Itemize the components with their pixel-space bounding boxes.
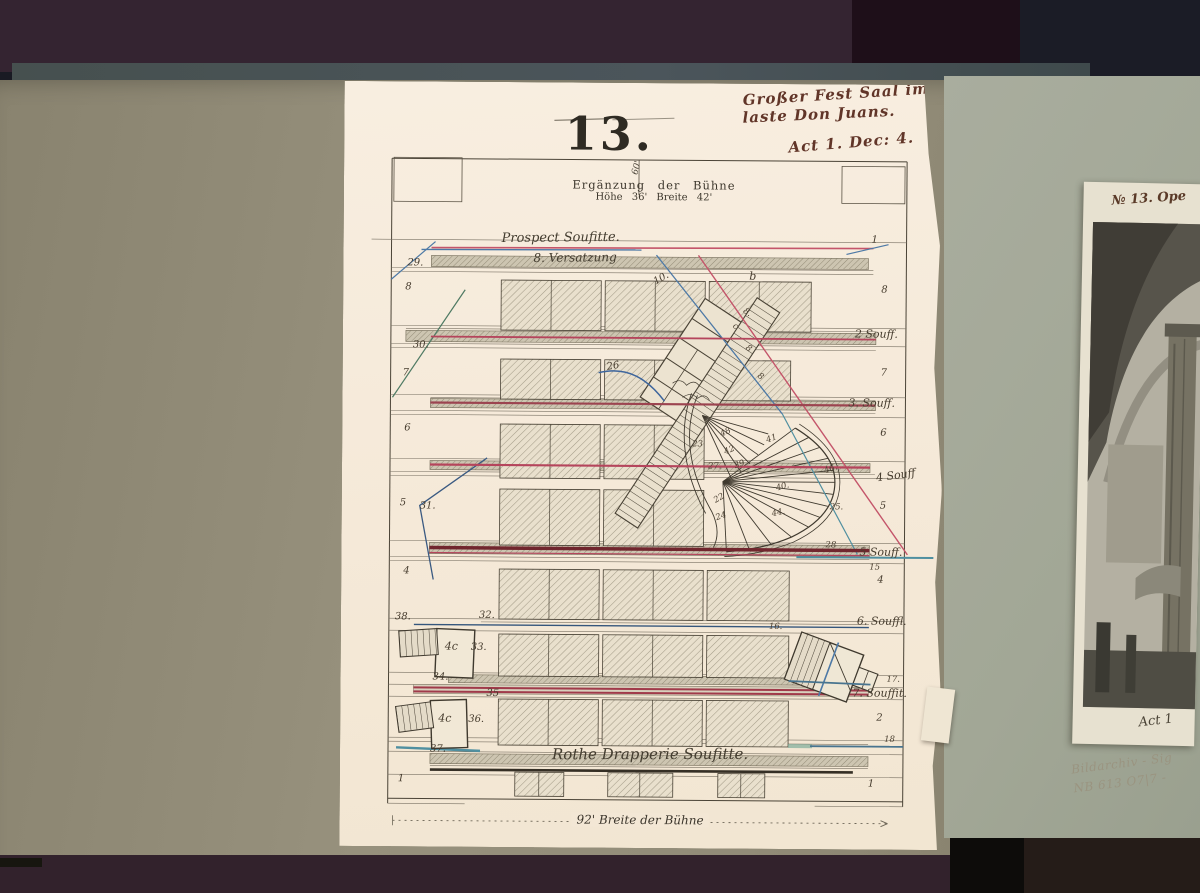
sepia-sketch-drawing	[1072, 182, 1200, 746]
photographed-album-spread: Großer Fest Saal im Pa laste Don Juans. …	[0, 0, 1200, 893]
sepia-stage-design-sketch: № 13. Ope Act 1	[1072, 182, 1200, 746]
plate-number: 13.	[544, 106, 674, 161]
stage-width-label: 92' Breite der Bühne	[571, 813, 708, 828]
dark-gap-block	[950, 838, 1024, 893]
drapery-soffit-label: Rothe Drapperie Soufitte.	[552, 745, 748, 763]
leather-cover-top-left	[0, 0, 852, 72]
versatzung-label: 8. Versatzung	[533, 250, 616, 265]
stage-plan-sheet: Großer Fest Saal im Pa laste Don Juans. …	[339, 81, 944, 850]
prospect-soffit-label: Prospect Soufitte.	[502, 230, 620, 246]
leather-cover-bottom-right	[1023, 831, 1200, 893]
dark-edge-sliver	[0, 858, 42, 867]
plan-subtitle: Höhe 36' Breite 42'	[566, 191, 742, 203]
plan-title: Ergänzung der Bühne	[566, 177, 742, 192]
